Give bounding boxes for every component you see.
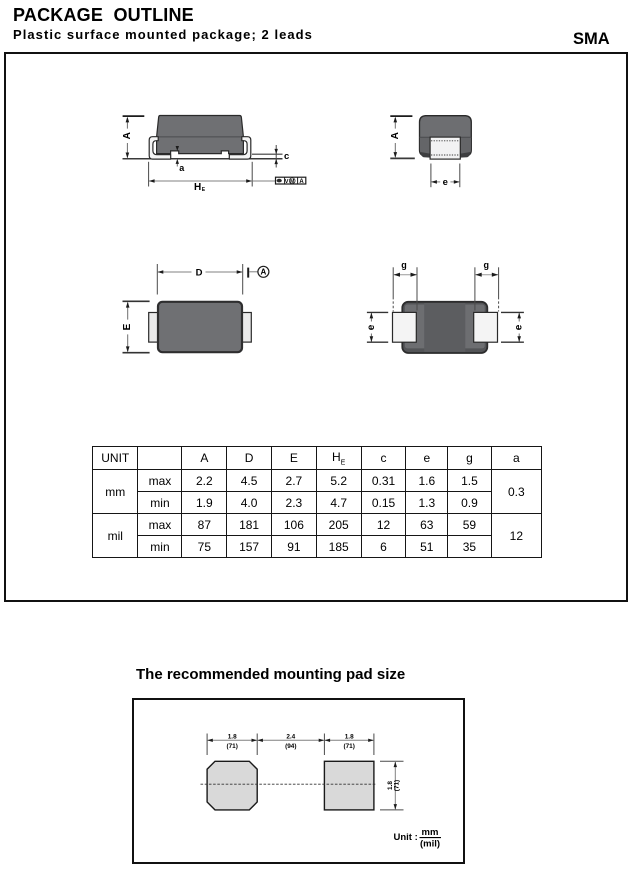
svg-text:2.4: 2.4	[286, 733, 295, 740]
svg-text:e: e	[366, 324, 377, 330]
svg-text:(mil): (mil)	[420, 839, 440, 850]
svg-text:c: c	[284, 151, 289, 162]
svg-text:V: V	[285, 179, 289, 185]
svg-text:(94): (94)	[285, 743, 296, 750]
svg-text:mm: mm	[422, 827, 439, 838]
svg-text:a: a	[179, 163, 185, 173]
svg-text:A: A	[261, 268, 267, 277]
svg-text:(71): (71)	[344, 743, 355, 750]
svg-text:1.8: 1.8	[345, 733, 354, 740]
svg-text:A: A	[122, 132, 133, 139]
svg-text:g: g	[401, 260, 407, 270]
svg-text:A: A	[390, 132, 401, 139]
svg-text:H: H	[194, 182, 201, 193]
svg-text:1.8: 1.8	[228, 733, 237, 740]
svg-text:(71): (71)	[394, 780, 401, 791]
svg-text:e: e	[514, 324, 525, 330]
svg-text:E: E	[202, 187, 206, 193]
svg-text:M: M	[290, 179, 294, 185]
svg-text:g: g	[483, 260, 489, 270]
svg-text:Unit :: Unit :	[394, 832, 418, 843]
svg-text:A: A	[299, 179, 304, 185]
svg-text:E: E	[122, 323, 133, 330]
svg-text:e: e	[443, 177, 448, 188]
svg-text:D: D	[196, 267, 203, 278]
svg-text:(71): (71)	[227, 743, 238, 750]
